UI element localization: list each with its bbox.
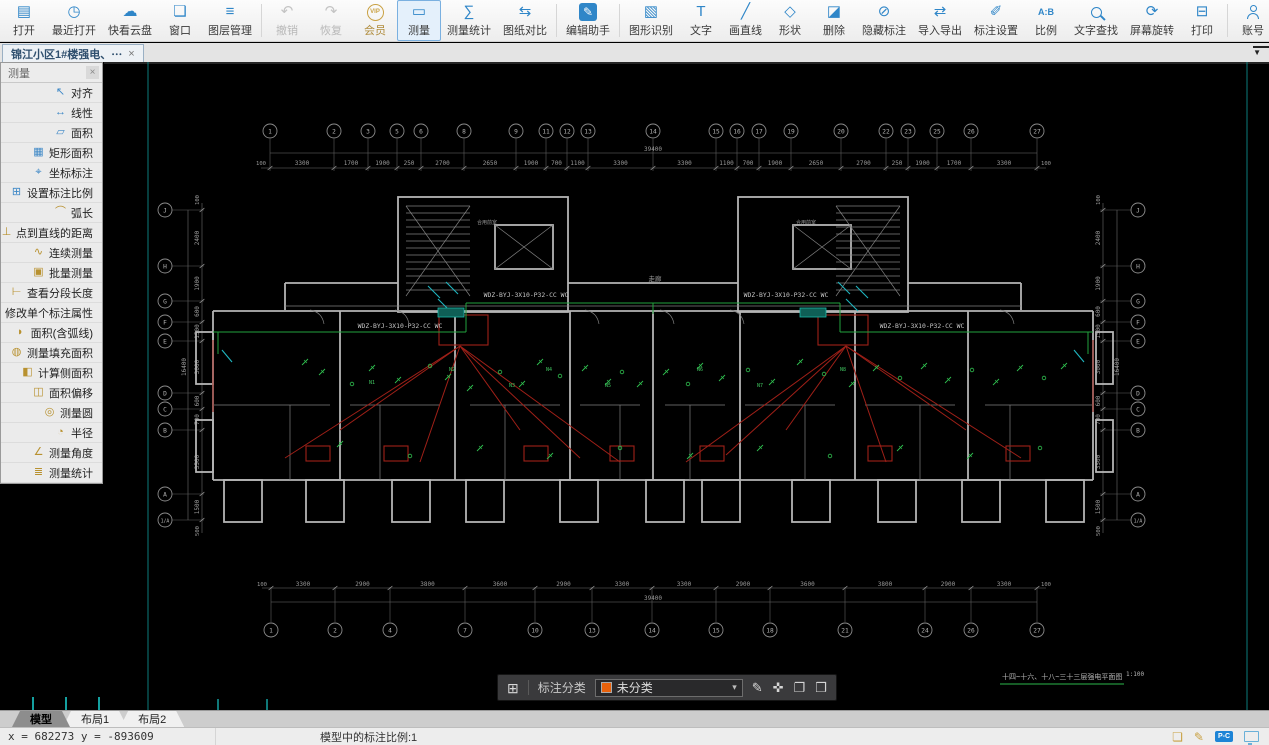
toolbar-drawing-compare-button[interactable]: ⇆图纸对比 bbox=[497, 0, 553, 41]
svg-text:17: 17 bbox=[755, 128, 763, 135]
svg-text:100: 100 bbox=[1041, 582, 1051, 588]
svg-text:3300: 3300 bbox=[613, 160, 628, 167]
svg-text:1700: 1700 bbox=[344, 160, 359, 167]
svg-text:12: 12 bbox=[563, 128, 571, 135]
measure-tool-batch-measure[interactable]: ▣批量测量 bbox=[1, 263, 102, 283]
vip-member-label: 会员 bbox=[364, 22, 386, 38]
print-icon: ⊟ bbox=[1193, 3, 1211, 21]
toolbar-screen-rotate-button[interactable]: ⟳屏幕旋转 bbox=[1124, 0, 1180, 41]
svg-text:16400: 16400 bbox=[181, 358, 188, 376]
toolbar-shape-recognition-button[interactable]: ▧图形识别 bbox=[623, 0, 679, 41]
toolbar-text-search-button[interactable]: 文字查找 bbox=[1068, 0, 1124, 41]
shape-recognition-icon: ▧ bbox=[642, 3, 660, 21]
toolbar-draw-line-button[interactable]: ╱画直线 bbox=[723, 0, 768, 41]
svg-text:2900: 2900 bbox=[556, 581, 571, 588]
drawing-title: 十四~十六、十八~三十三层强电平面图 bbox=[1002, 672, 1122, 681]
svg-text:600: 600 bbox=[1095, 395, 1102, 406]
vip-member-icon: VIP bbox=[366, 3, 384, 21]
svg-text:13: 13 bbox=[588, 627, 596, 634]
svg-text:C: C bbox=[1136, 406, 1140, 413]
text-search-icon bbox=[1087, 3, 1105, 21]
window-label: 窗口 bbox=[169, 22, 191, 38]
classify-edit-icon[interactable]: ✎ bbox=[752, 681, 763, 695]
measure-tool-coordinate-annotation[interactable]: ⌖坐标标注 bbox=[1, 163, 102, 183]
drawing-scale: 1:100 bbox=[1126, 671, 1144, 678]
svg-text:2: 2 bbox=[332, 128, 336, 135]
screen-rotate-icon: ⟳ bbox=[1143, 3, 1161, 21]
toolbar-redo-button[interactable]: ↷恢复 bbox=[309, 0, 353, 41]
screen-rotate-label: 屏幕旋转 bbox=[1130, 22, 1174, 38]
redo-icon: ↷ bbox=[322, 3, 340, 21]
svg-text:F: F bbox=[163, 319, 167, 326]
text-label: 文字 bbox=[690, 22, 712, 38]
text-search-label: 文字查找 bbox=[1074, 22, 1118, 38]
svg-text:H: H bbox=[1136, 263, 1140, 270]
svg-text:27: 27 bbox=[1033, 627, 1041, 634]
area-offset-icon: ◫ bbox=[32, 386, 45, 399]
svg-text:11: 11 bbox=[542, 128, 550, 135]
sheet-tab-布局2[interactable]: 布局2 bbox=[120, 711, 184, 727]
svg-text:3300: 3300 bbox=[997, 581, 1012, 588]
sheet-tab-布局1[interactable]: 布局1 bbox=[63, 711, 127, 727]
svg-text:10: 10 bbox=[531, 627, 539, 634]
measure-tool-radius[interactable]: ◔半径 bbox=[1, 423, 102, 443]
unit-circuit-label: N3 bbox=[509, 383, 515, 389]
classify-copy-icon[interactable]: ❐ bbox=[794, 681, 806, 695]
svg-text:2400: 2400 bbox=[194, 230, 201, 245]
svg-text:A: A bbox=[163, 491, 167, 498]
svg-text:2650: 2650 bbox=[809, 160, 824, 167]
svg-text:2900: 2900 bbox=[941, 581, 956, 588]
classify-selected-value: 未分类 bbox=[617, 679, 653, 696]
measure-tool-align[interactable]: ↖对齐 bbox=[1, 83, 102, 103]
layer-manager-label: 图层管理 bbox=[208, 22, 252, 38]
monitor-icon[interactable] bbox=[1244, 731, 1259, 742]
delete-icon: ◪ bbox=[825, 3, 843, 21]
svg-text:1900: 1900 bbox=[375, 160, 390, 167]
svg-text:2700: 2700 bbox=[856, 160, 871, 167]
svg-text:E: E bbox=[163, 338, 167, 345]
svg-text:100: 100 bbox=[256, 161, 266, 167]
text-icon: T bbox=[692, 3, 710, 21]
svg-text:3600: 3600 bbox=[800, 581, 815, 588]
svg-text:3800: 3800 bbox=[878, 581, 893, 588]
toolbar-scale-ratio-button[interactable]: A:B比例 bbox=[1024, 0, 1068, 41]
toolbar-text-button[interactable]: T文字 bbox=[679, 0, 723, 41]
measure-circle-label: 测量圆 bbox=[60, 405, 93, 421]
document-tab-close-icon[interactable]: × bbox=[128, 48, 134, 60]
toolbar-window-button[interactable]: ❏窗口 bbox=[158, 0, 202, 41]
svg-text:1: 1 bbox=[269, 627, 273, 634]
svg-text:23: 23 bbox=[904, 128, 912, 135]
svg-text:14: 14 bbox=[648, 627, 656, 634]
classify-color-swatch bbox=[601, 682, 612, 693]
annotation-settings-icon: ✐ bbox=[987, 3, 1005, 21]
toolbar-hide-annotation-button[interactable]: ⊘隐藏标注 bbox=[856, 0, 912, 41]
measure-icon: ▭ bbox=[410, 3, 428, 21]
svg-text:26: 26 bbox=[967, 128, 975, 135]
hide-annotation-label: 隐藏标注 bbox=[862, 22, 906, 38]
svg-text:21: 21 bbox=[841, 627, 849, 634]
svg-text:22: 22 bbox=[882, 128, 890, 135]
svg-text:B: B bbox=[1136, 427, 1140, 434]
svg-text:1900: 1900 bbox=[524, 160, 539, 167]
svg-text:E: E bbox=[1136, 338, 1140, 345]
calc-side-area-icon: ◧ bbox=[21, 366, 34, 379]
print-label: 打印 bbox=[1191, 22, 1213, 38]
area-icon: ▱ bbox=[54, 126, 67, 139]
draw-line-label: 画直线 bbox=[729, 22, 762, 38]
svg-text:3000: 3000 bbox=[194, 359, 201, 374]
svg-text:2700: 2700 bbox=[435, 160, 450, 167]
align-icon: ↖ bbox=[54, 86, 67, 99]
coordinate-annotation-icon: ⌖ bbox=[32, 166, 45, 179]
continuous-measure-icon: ∿ bbox=[32, 246, 45, 259]
svg-text:16400: 16400 bbox=[1114, 358, 1121, 376]
toolbar-shapes-button[interactable]: ◇形状 bbox=[768, 0, 812, 41]
wiring-label: WDZ-BYJ-3X10-P32-CC WC bbox=[880, 322, 965, 330]
toolbar-separator bbox=[619, 4, 620, 37]
measure-tool-continuous-measure[interactable]: ∿连续测量 bbox=[1, 243, 102, 263]
drawing-canvas[interactable]: 1235689111213141516171920222325262733001… bbox=[0, 62, 1269, 710]
classify-paste-icon[interactable]: ❒ bbox=[815, 681, 827, 695]
svg-text:39400: 39400 bbox=[644, 595, 662, 602]
svg-text:D: D bbox=[163, 390, 167, 397]
svg-text:G: G bbox=[163, 298, 167, 305]
quick-edit-icon[interactable]: ✎ bbox=[1194, 730, 1204, 744]
toolbar-annotation-settings-button[interactable]: ✐标注设置 bbox=[968, 0, 1024, 41]
arc-length-icon: ⌒ bbox=[54, 206, 67, 219]
svg-text:3300: 3300 bbox=[677, 160, 692, 167]
feedback-doc-icon[interactable]: ❏ bbox=[1172, 730, 1183, 744]
classify-label: 标注分类 bbox=[538, 679, 586, 696]
sheet-tab-bar: 模型布局1布局2 bbox=[0, 710, 1269, 727]
svg-text:13: 13 bbox=[584, 128, 592, 135]
annotation-settings-label: 标注设置 bbox=[974, 22, 1018, 38]
svg-text:20: 20 bbox=[837, 128, 845, 135]
svg-text:1900: 1900 bbox=[1095, 276, 1102, 291]
measure-tool-measure-fill-area[interactable]: ◍测量填充面积 bbox=[1, 343, 102, 363]
toolbar-open-button[interactable]: ▤打开 bbox=[2, 0, 46, 41]
svg-text:18: 18 bbox=[766, 627, 774, 634]
area-label: 面积 bbox=[71, 125, 93, 141]
svg-text:500: 500 bbox=[195, 526, 201, 536]
toolbar-separator bbox=[1227, 4, 1228, 37]
document-tab-bar: 锦江小区1#楼强电、⋯ × ▼ bbox=[0, 43, 1269, 62]
svg-text:5: 5 bbox=[395, 128, 399, 135]
set-annotation-scale-label: 设置标注比例 bbox=[27, 185, 93, 201]
measure-tool-point-to-line-distance[interactable]: ⊥点到直线的距离 bbox=[1, 223, 102, 243]
measure-stats-icon: ∑ bbox=[460, 3, 478, 21]
toolbar-separator bbox=[261, 4, 262, 37]
status-bar: x = 682273 y = -893609 模型中的标注比例:1 ❏ ✎ P-… bbox=[0, 727, 1269, 745]
svg-text:1100: 1100 bbox=[719, 160, 734, 167]
svg-text:2900: 2900 bbox=[355, 581, 370, 588]
svg-text:3800: 3800 bbox=[420, 581, 435, 588]
shapes-label: 形状 bbox=[779, 22, 801, 38]
svg-text:2900: 2900 bbox=[736, 581, 751, 588]
toolbar-recent-open-button[interactable]: ◷最近打开 bbox=[46, 0, 102, 41]
wiring-label: WDZ-BYJ-3X10-P32-CC WC bbox=[358, 322, 443, 330]
measure-panel-title: 测量 bbox=[8, 65, 30, 81]
svg-text:1700: 1700 bbox=[947, 160, 962, 167]
area-with-arc-label: 面积(含弧线) bbox=[31, 325, 93, 341]
svg-text:14: 14 bbox=[649, 128, 657, 135]
measure-statistics-label: 测量统计 bbox=[49, 465, 93, 481]
scale-ratio-icon: A:B bbox=[1037, 3, 1055, 21]
measure-tool-area-offset[interactable]: ◫面积偏移 bbox=[1, 383, 102, 403]
drawing-compare-label: 图纸对比 bbox=[503, 22, 547, 38]
svg-text:1/A: 1/A bbox=[1134, 518, 1143, 524]
batch-measure-label: 批量测量 bbox=[49, 265, 93, 281]
svg-text:3: 3 bbox=[366, 128, 370, 135]
account-icon bbox=[1244, 3, 1262, 21]
modify-annotation-property-icon: ✎ bbox=[0, 306, 1, 319]
room-label: 合用前室 bbox=[796, 219, 816, 226]
svg-text:1500: 1500 bbox=[1095, 499, 1102, 514]
measure-label: 测量 bbox=[408, 22, 430, 38]
calc-side-area-label: 计算侧面积 bbox=[38, 365, 93, 381]
cursor-coordinates: x = 682273 y = -893609 bbox=[0, 728, 216, 745]
classify-grid-icon[interactable]: ⊞ bbox=[507, 681, 519, 695]
svg-text:8: 8 bbox=[462, 128, 466, 135]
unit-circuit-label: N7 bbox=[757, 383, 763, 389]
account-label: 账号 bbox=[1242, 22, 1264, 38]
open-icon: ▤ bbox=[15, 3, 33, 21]
coordinate-annotation-label: 坐标标注 bbox=[49, 165, 93, 181]
svg-text:J: J bbox=[1136, 207, 1140, 214]
svg-text:1500: 1500 bbox=[194, 499, 201, 514]
measure-statistics-icon: ≣ bbox=[32, 466, 45, 479]
align-label: 对齐 bbox=[71, 85, 93, 101]
layer-manager-icon: ≡ bbox=[221, 3, 239, 21]
svg-text:100: 100 bbox=[1096, 195, 1102, 205]
measure-tool-linear[interactable]: ↔线性 bbox=[1, 103, 102, 123]
measure-fill-area-icon: ◍ bbox=[10, 346, 23, 359]
svg-text:100: 100 bbox=[257, 582, 267, 588]
toolbar-cloud-drive-button[interactable]: ☁快看云盘 bbox=[102, 0, 158, 41]
svg-text:G: G bbox=[1136, 298, 1140, 305]
tab-overflow-icon[interactable]: ▼ bbox=[1253, 46, 1269, 60]
classify-toolbar: ⊞ 标注分类 未分类 ▾ ✎✜❐❒ bbox=[497, 674, 837, 701]
measure-tool-set-annotation-scale[interactable]: ⊞设置标注比例 bbox=[1, 183, 102, 203]
import-export-icon: ⇄ bbox=[931, 3, 949, 21]
radius-icon: ◔ bbox=[54, 426, 67, 439]
svg-text:F: F bbox=[1136, 319, 1140, 326]
room-label: 走廊 bbox=[649, 274, 663, 283]
scale-ratio-label: 比例 bbox=[1035, 22, 1057, 38]
delete-label: 删除 bbox=[823, 22, 845, 38]
open-label: 打开 bbox=[13, 22, 35, 38]
svg-text:100: 100 bbox=[1041, 161, 1051, 167]
measure-tool-measure-circle[interactable]: ◎测量圆 bbox=[1, 403, 102, 423]
svg-text:250: 250 bbox=[404, 160, 415, 167]
recent-open-icon: ◷ bbox=[65, 3, 83, 21]
measure-tool-view-segment-length[interactable]: ⊢查看分段长度 bbox=[1, 283, 102, 303]
unit-circuit-label: N6 bbox=[697, 367, 703, 373]
edit-assistant-label: 编辑助手 bbox=[566, 22, 610, 38]
svg-text:15: 15 bbox=[712, 128, 720, 135]
floor-plan-svg[interactable]: 1235689111213141516171920222325262733001… bbox=[0, 62, 1269, 710]
linear-label: 线性 bbox=[71, 105, 93, 121]
cloud-drive-icon: ☁ bbox=[121, 3, 139, 21]
point-to-line-distance-label: 点到直线的距离 bbox=[16, 225, 93, 241]
svg-text:700: 700 bbox=[743, 160, 754, 167]
svg-text:250: 250 bbox=[892, 160, 903, 167]
hide-annotation-icon: ⊘ bbox=[875, 3, 893, 21]
room-label: 合用前室 bbox=[477, 219, 497, 226]
svg-text:15: 15 bbox=[712, 627, 720, 634]
svg-text:600: 600 bbox=[194, 306, 201, 317]
view-segment-length-icon: ⊢ bbox=[10, 286, 23, 299]
measure-tool-area[interactable]: ▱面积 bbox=[1, 123, 102, 143]
svg-text:600: 600 bbox=[194, 395, 201, 406]
document-tab-title: 锦江小区1#楼强电、⋯ bbox=[11, 46, 122, 62]
chevron-down-icon: ▾ bbox=[732, 682, 737, 693]
svg-text:3300: 3300 bbox=[997, 160, 1012, 167]
classify-move-icon[interactable]: ✜ bbox=[773, 681, 784, 695]
unit-circuit-label: N5 bbox=[605, 383, 611, 389]
svg-text:1/A: 1/A bbox=[161, 518, 170, 524]
pc-sync-badge[interactable]: P-C bbox=[1215, 731, 1233, 742]
main-toolbar: ▤打开◷最近打开☁快看云盘❏窗口≡图层管理↶撤销↷恢复VIP会员▭测量∑测量统计… bbox=[0, 0, 1269, 42]
svg-text:1900: 1900 bbox=[194, 276, 201, 291]
svg-text:1: 1 bbox=[268, 128, 272, 135]
arc-length-label: 弧长 bbox=[71, 205, 93, 221]
redo-label: 恢复 bbox=[320, 22, 342, 38]
measure-tool-modify-annotation-property[interactable]: ✎修改单个标注属性 bbox=[1, 303, 102, 323]
view-segment-length-label: 查看分段长度 bbox=[27, 285, 93, 301]
linear-icon: ↔ bbox=[54, 106, 67, 119]
measure-tool-area-with-arc[interactable]: ◗面积(含弧线) bbox=[1, 323, 102, 343]
undo-label: 撤销 bbox=[276, 22, 298, 38]
svg-text:24: 24 bbox=[921, 627, 929, 634]
edit-assistant-icon: ✎ bbox=[579, 3, 597, 21]
measure-angle-icon: ∠ bbox=[32, 446, 45, 459]
measure-tool-arc-length[interactable]: ⌒弧长 bbox=[1, 203, 102, 223]
point-to-line-distance-icon: ⊥ bbox=[1, 226, 12, 239]
unit-circuit-label: N2 bbox=[449, 367, 455, 373]
svg-text:16: 16 bbox=[733, 128, 741, 135]
toolbar-undo-button[interactable]: ↶撤销 bbox=[265, 0, 309, 41]
svg-text:H: H bbox=[163, 263, 167, 270]
svg-text:39400: 39400 bbox=[644, 146, 662, 153]
measure-panel-header: 测量 × bbox=[1, 63, 102, 83]
toolbar-measure-stats-button[interactable]: ∑测量统计 bbox=[441, 0, 497, 41]
shapes-icon: ◇ bbox=[781, 3, 799, 21]
toolbar-vip-member-button[interactable]: VIP会员 bbox=[353, 0, 397, 41]
rect-area-icon: ▦ bbox=[32, 146, 45, 159]
svg-text:1900: 1900 bbox=[915, 160, 930, 167]
document-tab[interactable]: 锦江小区1#楼强电、⋯ × bbox=[2, 44, 144, 62]
unit-circuit-label: N8 bbox=[840, 367, 846, 373]
measure-panel-close-icon[interactable]: × bbox=[86, 66, 99, 79]
svg-text:2: 2 bbox=[333, 627, 337, 634]
svg-text:D: D bbox=[1136, 390, 1140, 397]
unit-circuit-label: N4 bbox=[546, 367, 552, 373]
rect-area-label: 矩形面积 bbox=[49, 145, 93, 161]
svg-text:1100: 1100 bbox=[570, 160, 585, 167]
toolbar-delete-button[interactable]: ◪删除 bbox=[812, 0, 856, 41]
svg-text:1900: 1900 bbox=[768, 160, 783, 167]
classify-separator bbox=[528, 680, 529, 695]
batch-measure-icon: ▣ bbox=[32, 266, 45, 279]
svg-text:9: 9 bbox=[514, 128, 518, 135]
svg-text:700: 700 bbox=[551, 160, 562, 167]
toolbar-print-button[interactable]: ⊟打印 bbox=[1180, 0, 1224, 41]
svg-text:3300: 3300 bbox=[615, 581, 630, 588]
drawing-compare-icon: ⇆ bbox=[516, 3, 534, 21]
recent-open-label: 最近打开 bbox=[52, 22, 96, 38]
svg-text:3500: 3500 bbox=[194, 454, 201, 469]
sheet-tab-模型[interactable]: 模型 bbox=[12, 711, 70, 727]
svg-text:7: 7 bbox=[463, 627, 467, 634]
svg-text:B: B bbox=[163, 427, 167, 434]
measure-panel: 测量 × ↖对齐↔线性▱面积▦矩形面积⌖坐标标注⊞设置标注比例⌒弧长⊥点到直线的… bbox=[0, 62, 103, 484]
svg-text:J: J bbox=[163, 207, 167, 214]
undo-icon: ↶ bbox=[278, 3, 296, 21]
svg-text:26: 26 bbox=[967, 627, 975, 634]
measure-angle-label: 测量角度 bbox=[49, 445, 93, 461]
continuous-measure-label: 连续测量 bbox=[49, 245, 93, 261]
modify-annotation-property-label: 修改单个标注属性 bbox=[5, 305, 93, 321]
toolbar-separator bbox=[556, 4, 557, 37]
toolbar-import-export-button[interactable]: ⇄导入导出 bbox=[912, 0, 968, 41]
wiring-label: WDZ-BYJ-3X10-P32-CC WC bbox=[744, 291, 829, 299]
svg-text:4: 4 bbox=[388, 627, 392, 634]
measure-stats-label: 测量统计 bbox=[447, 22, 491, 38]
classify-dropdown[interactable]: 未分类 ▾ bbox=[595, 679, 743, 697]
unit-circuit-label: N1 bbox=[369, 380, 375, 386]
cloud-drive-label: 快看云盘 bbox=[108, 22, 152, 38]
svg-text:3300: 3300 bbox=[677, 581, 692, 588]
svg-text:25: 25 bbox=[933, 128, 941, 135]
svg-text:A: A bbox=[1136, 491, 1140, 498]
set-annotation-scale-icon: ⊞ bbox=[10, 186, 23, 199]
draw-line-icon: ╱ bbox=[737, 3, 755, 21]
measure-fill-area-label: 测量填充面积 bbox=[27, 345, 93, 361]
svg-text:19: 19 bbox=[787, 128, 795, 135]
measure-tool-calc-side-area[interactable]: ◧计算侧面积 bbox=[1, 363, 102, 383]
toolbar-layer-manager-button[interactable]: ≡图层管理 bbox=[202, 0, 258, 41]
svg-text:27: 27 bbox=[1033, 128, 1041, 135]
measure-circle-icon: ◎ bbox=[43, 406, 56, 419]
measure-tool-rect-area[interactable]: ▦矩形面积 bbox=[1, 143, 102, 163]
toolbar-measure-button[interactable]: ▭测量 bbox=[397, 0, 441, 41]
area-with-arc-icon: ◗ bbox=[14, 326, 27, 339]
svg-text:2400: 2400 bbox=[1095, 230, 1102, 245]
svg-text:3300: 3300 bbox=[295, 160, 310, 167]
svg-text:2650: 2650 bbox=[483, 160, 498, 167]
model-annotation-scale: 模型中的标注比例:1 bbox=[320, 729, 417, 745]
svg-text:3300: 3300 bbox=[296, 581, 311, 588]
shape-recognition-label: 图形识别 bbox=[629, 22, 673, 38]
radius-label: 半径 bbox=[71, 425, 93, 441]
toolbar-account-button[interactable]: 账号 bbox=[1231, 0, 1269, 41]
area-offset-label: 面积偏移 bbox=[49, 385, 93, 401]
measure-tool-measure-statistics[interactable]: ≣测量统计 bbox=[1, 463, 102, 483]
svg-text:C: C bbox=[163, 406, 167, 413]
measure-tool-measure-angle[interactable]: ∠测量角度 bbox=[1, 443, 102, 463]
svg-text:100: 100 bbox=[195, 195, 201, 205]
svg-text:3600: 3600 bbox=[493, 581, 508, 588]
svg-text:500: 500 bbox=[1096, 526, 1102, 536]
toolbar-edit-assistant-button[interactable]: ✎编辑助手 bbox=[560, 0, 616, 41]
svg-text:600: 600 bbox=[1095, 306, 1102, 317]
wiring-label: WDZ-BYJ-3X10-P32-CC WC bbox=[484, 291, 569, 299]
window-icon: ❏ bbox=[171, 3, 189, 21]
svg-text:6: 6 bbox=[419, 128, 423, 135]
